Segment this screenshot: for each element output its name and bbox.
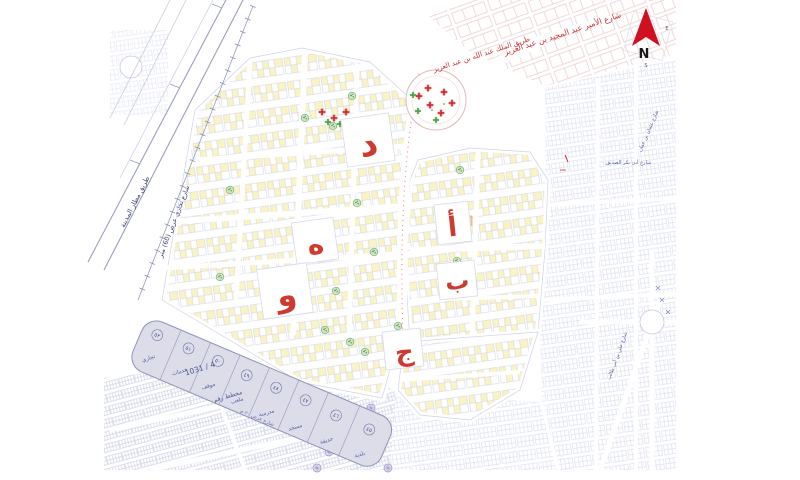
tree-icon: [353, 199, 361, 207]
landscaped-roundabout: [406, 70, 466, 130]
east-street-label-2: شارع أبي بكر الصديق: [606, 159, 651, 166]
zone-marker-dal: د: [341, 113, 395, 168]
tree-icon: [332, 287, 340, 295]
tree-icon: [456, 166, 464, 174]
compass-south-label: S: [644, 63, 647, 69]
airport-road-label: طريق مطار المدينة: [119, 175, 152, 229]
tree-icon: [226, 186, 234, 194]
map-canvas: طريق مطار المدينة شارع تجاري عرض (60) مت…: [0, 0, 800, 480]
purple-tree-icon: [384, 464, 392, 472]
roundabout-east: [640, 310, 664, 334]
tree-icon: [346, 338, 354, 346]
tree-icon: [361, 348, 369, 356]
district-top-left-faint: [110, 0, 186, 125]
purple-tree-icon: [313, 464, 321, 472]
tree-icon: [370, 248, 378, 256]
district-right-ab: [404, 148, 548, 345]
zone-marker-waw: و: [257, 263, 313, 319]
zone-marker-ha: ه: [291, 217, 338, 264]
tree-icon: [348, 92, 356, 100]
tree-icon: [329, 122, 337, 130]
zone-marker-alif: أ: [434, 201, 472, 244]
zone-marker-jim: ج: [382, 328, 424, 370]
tree-icon: [394, 322, 402, 330]
zone-letter-ba: ب: [444, 266, 471, 296]
zone-letter-jim: ج: [394, 337, 416, 369]
tree-icon: [216, 273, 224, 281]
zone-marker-ba: ب: [436, 260, 478, 300]
compass-north-label: N: [639, 47, 650, 62]
city-plan-map: طريق مطار المدينة شارع تجاري عرض (60) مت…: [0, 0, 800, 480]
tree-icon: [321, 326, 329, 334]
compass-east-label: E: [665, 26, 668, 32]
tree-icon: [301, 114, 309, 122]
